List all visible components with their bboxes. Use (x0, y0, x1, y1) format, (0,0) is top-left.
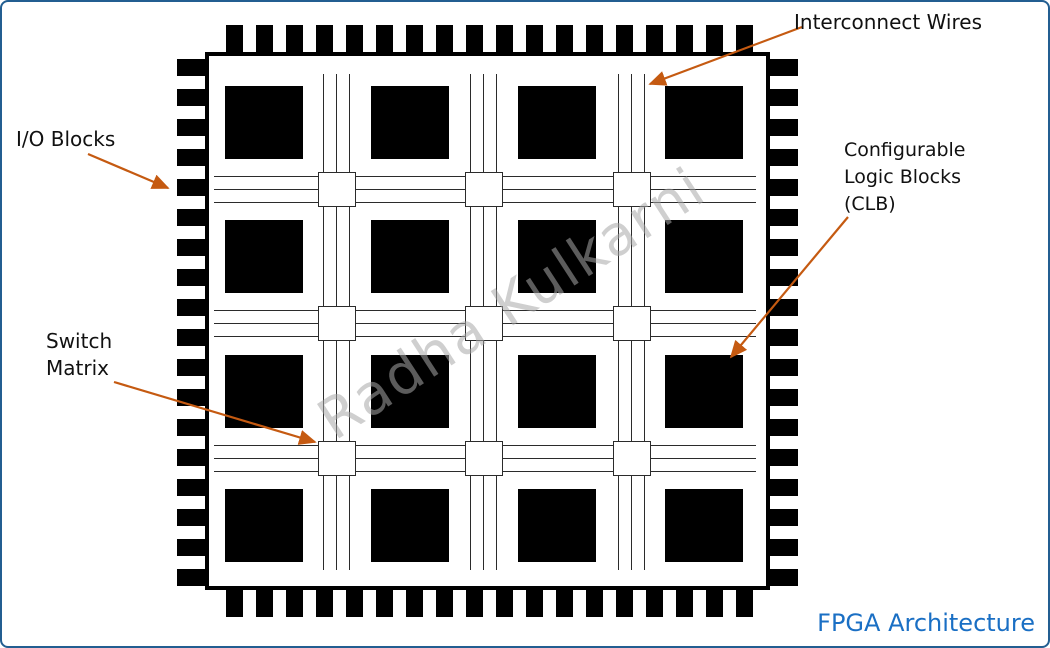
figure-title: FPGA Architecture (817, 609, 1035, 637)
io-pin-strip-bottom (226, 590, 753, 617)
switch-matrix-block (613, 441, 651, 476)
switch-matrix-label: Switch Matrix (46, 328, 130, 382)
switch-matrix-block (318, 441, 356, 476)
switch-matrix-block (318, 172, 356, 207)
clb-block (371, 86, 449, 159)
clb-block (665, 220, 743, 293)
clb-block (518, 220, 596, 293)
clb-block (665, 355, 743, 428)
switch-matrix-block (465, 441, 503, 476)
switch-matrix-block (613, 306, 651, 341)
clb-block (371, 355, 449, 428)
clb-block (518, 489, 596, 562)
clb-block (665, 489, 743, 562)
clb-block (665, 86, 743, 159)
io-pin-strip-right (770, 59, 798, 586)
io-blocks-arrow (88, 154, 168, 188)
io-pin-strip-top (226, 25, 753, 52)
clb-label: Configurable Logic Blocks (CLB) (844, 137, 986, 218)
switch-matrix-block (465, 306, 503, 341)
fpga-architecture-diagram: Radha Kulkarni Interconnect Wires I/O Bl… (0, 0, 1050, 648)
switch-matrix-block (465, 172, 503, 207)
io-pin-strip-left (177, 59, 205, 586)
io-blocks-label: I/O Blocks (16, 126, 115, 153)
clb-block (225, 355, 303, 428)
clb-block (225, 489, 303, 562)
clb-block (225, 86, 303, 159)
switch-matrix-block (318, 306, 356, 341)
clb-block (371, 220, 449, 293)
clb-block (225, 220, 303, 293)
clb-block (371, 489, 449, 562)
clb-block (518, 86, 596, 159)
interconnect-wires-label: Interconnect Wires (794, 9, 982, 36)
switch-matrix-block (613, 172, 651, 207)
clb-block (518, 355, 596, 428)
